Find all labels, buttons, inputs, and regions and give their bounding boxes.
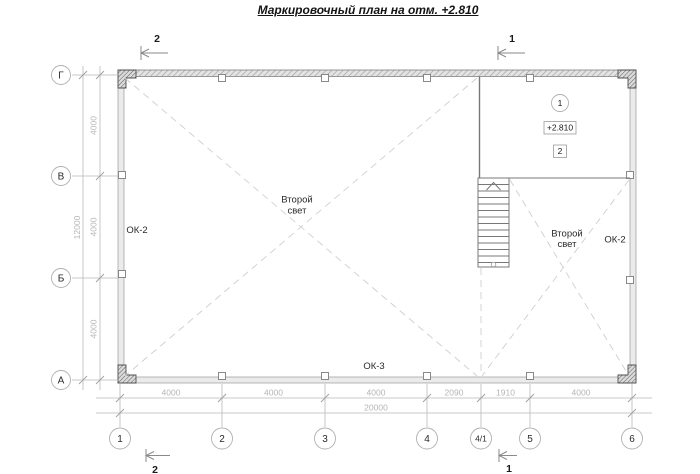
section-number: 2	[152, 464, 158, 474]
axis-label: 2	[219, 434, 225, 445]
dim-total: 12000	[72, 215, 82, 239]
dim-value: 4000	[89, 217, 99, 236]
second-light-line1: Второй	[551, 229, 582, 240]
dim-value: 1910	[496, 388, 515, 398]
axis-label: В	[58, 172, 65, 183]
dim-value: 4000	[572, 388, 591, 398]
room-axis-tag: 1	[558, 98, 563, 108]
zone-tag-value: 2	[558, 146, 563, 156]
stair-up-arrow-icon	[487, 183, 501, 191]
section-number: 1	[509, 33, 515, 45]
axis-label: 4	[424, 434, 430, 445]
axis-label: Б	[58, 274, 65, 285]
dim-value: 4000	[367, 388, 386, 398]
second-light-line1: Второй	[281, 195, 312, 206]
corner-column-bottom-right	[618, 365, 636, 383]
dim-value: 2090	[445, 388, 464, 398]
axis-label: А	[58, 376, 65, 387]
staircase	[478, 178, 509, 267]
dim-total: 20000	[364, 403, 388, 413]
column	[627, 277, 634, 284]
room-annotations: 1 +2.810 2	[544, 95, 576, 158]
section-mark-2-bottom: 2	[146, 449, 170, 474]
column	[527, 75, 534, 82]
dimension-texts: 4000 4000 4000 2090 1910 4000 20000 4000…	[72, 116, 591, 413]
axis-label: 1	[117, 434, 123, 445]
window-mark-right: ОК-2	[604, 235, 625, 246]
second-light-line2: свет	[557, 239, 577, 250]
column	[527, 373, 534, 380]
bottom-wall	[118, 377, 636, 383]
axis-label: 6	[629, 434, 635, 445]
dim-value: 4000	[162, 388, 181, 398]
axis-label: Г	[58, 71, 64, 82]
section-arrow-icon	[499, 449, 517, 462]
section-number: 1	[506, 463, 512, 474]
drawing-page: Маркировочный план на отм. +2.810	[0, 0, 700, 474]
stair-treads	[478, 185, 509, 263]
left-wall	[118, 70, 124, 383]
column	[219, 75, 226, 82]
corner-columns	[118, 70, 636, 383]
window-mark-bottom: ОК-3	[363, 361, 384, 372]
wall-columns	[119, 75, 634, 380]
axis-label: 5	[527, 434, 533, 445]
floor-plan-canvas: 4000 4000 4000 2090 1910 4000 20000 4000…	[0, 0, 700, 474]
diagonal	[482, 180, 629, 376]
plan-labels: ОК-2 ОК-2 ОК-3 Второй свет Второй свет	[126, 195, 625, 373]
section-mark-1-top: 1	[498, 33, 525, 60]
corner-column-top-left	[118, 70, 136, 88]
elevation-value: +2.810	[547, 123, 574, 133]
column	[424, 75, 431, 82]
second-light-label-center: Второй свет	[281, 195, 312, 217]
section-mark-1-bottom: 1	[499, 449, 517, 474]
section-mark-2-top: 2	[141, 33, 168, 60]
column	[219, 373, 226, 380]
second-light-label-right: Второй свет	[551, 229, 582, 251]
dim-value: 4000	[89, 116, 99, 135]
section-number: 2	[154, 33, 160, 45]
top-wall-hatched	[118, 70, 636, 77]
column	[424, 373, 431, 380]
window-mark-left: ОК-2	[126, 225, 147, 236]
second-light-line2: свет	[287, 206, 307, 217]
section-arrow-icon	[146, 449, 170, 462]
column	[119, 271, 126, 278]
column	[322, 373, 329, 380]
section-arrow-icon	[141, 46, 168, 60]
corner-column-top-right	[618, 70, 636, 88]
diagonal	[510, 180, 629, 376]
axis-label: 4/1	[475, 434, 487, 444]
stair-start-marker	[491, 262, 496, 267]
dim-value: 4000	[264, 388, 283, 398]
diagonal	[125, 78, 477, 376]
column	[322, 75, 329, 82]
right-wall	[630, 70, 636, 383]
exterior-walls	[118, 70, 636, 383]
column	[119, 172, 126, 179]
dim-value: 4000	[89, 319, 99, 338]
section-marks: 2 1 2 1	[141, 33, 525, 474]
section-arrow-icon	[498, 46, 525, 60]
axis-label: 3	[322, 434, 328, 445]
